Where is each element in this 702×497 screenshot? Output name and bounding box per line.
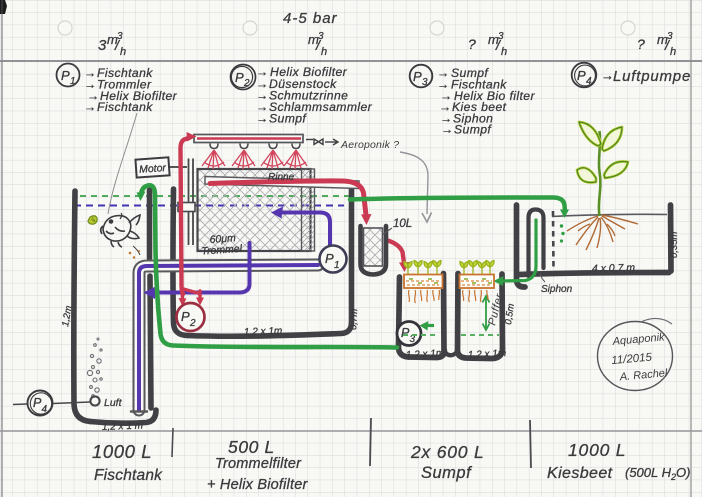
svg-text:4 x 0,7 m: 4 x 0,7 m bbox=[592, 262, 636, 275]
svg-text:1: 1 bbox=[70, 76, 76, 87]
svg-text:+ Helix Biofilter: + Helix Biofilter bbox=[207, 477, 308, 493]
svg-text:P: P bbox=[325, 251, 334, 266]
svg-text:1,2 x 1m: 1,2 x 1m bbox=[244, 326, 283, 338]
svg-text:→: → bbox=[256, 112, 269, 126]
svg-text:Aeroponik ?: Aeroponik ? bbox=[340, 139, 399, 151]
svg-text:h: h bbox=[670, 46, 676, 58]
svg-text:Sumpf: Sumpf bbox=[421, 464, 473, 482]
svg-text:1000 L: 1000 L bbox=[568, 440, 626, 460]
svg-text:4: 4 bbox=[42, 404, 48, 415]
svg-text:2x 600 L: 2x 600 L bbox=[410, 442, 485, 462]
svg-text:P: P bbox=[235, 70, 244, 85]
svg-text:1000 L: 1000 L bbox=[92, 441, 152, 462]
svg-text:h: h bbox=[120, 46, 126, 58]
svg-text:Siphon: Siphon bbox=[541, 284, 573, 295]
svg-text:→: → bbox=[84, 100, 97, 114]
svg-text:3: 3 bbox=[98, 37, 107, 54]
svg-text:0,35m: 0,35m bbox=[669, 232, 680, 258]
svg-text:Luft: Luft bbox=[104, 397, 123, 409]
svg-text:1,2 x 1m: 1,2 x 1m bbox=[468, 348, 507, 361]
svg-text:h: h bbox=[321, 46, 327, 58]
svg-text:Rinne: Rinne bbox=[268, 172, 295, 183]
svg-text:Kiesbeet: Kiesbeet bbox=[547, 465, 613, 482]
svg-text:1,2 x 1 m: 1,2 x 1 m bbox=[102, 421, 143, 433]
svg-text:Fischtank: Fischtank bbox=[97, 100, 153, 114]
svg-text:1: 1 bbox=[334, 260, 340, 271]
svg-text:3: 3 bbox=[422, 77, 428, 88]
svg-text:?: ? bbox=[468, 36, 476, 52]
svg-text:2: 2 bbox=[189, 318, 196, 329]
svg-text:→: → bbox=[441, 123, 454, 137]
svg-text:Motor: Motor bbox=[139, 162, 167, 176]
svg-text:1,2 x 1m: 1,2 x 1m bbox=[406, 348, 445, 361]
svg-text:P: P bbox=[577, 68, 586, 83]
svg-text:?: ? bbox=[637, 36, 645, 52]
svg-text:O): O) bbox=[676, 465, 690, 480]
svg-text:Luftpumpe: Luftpumpe bbox=[613, 68, 691, 85]
svg-text:Sumpf: Sumpf bbox=[269, 112, 307, 126]
svg-text:P: P bbox=[61, 68, 70, 83]
svg-text:500 L: 500 L bbox=[228, 437, 275, 457]
svg-text:Trommelfilter: Trommelfilter bbox=[215, 456, 302, 472]
svg-text:P: P bbox=[413, 69, 422, 84]
svg-text:10L: 10L bbox=[393, 218, 412, 230]
svg-text:4: 4 bbox=[586, 76, 592, 87]
svg-text:Sumpf: Sumpf bbox=[454, 123, 492, 137]
svg-text:(500L H: (500L H bbox=[625, 465, 672, 480]
svg-text:h: h bbox=[501, 46, 507, 58]
svg-text:4-5 bar: 4-5 bar bbox=[283, 10, 338, 27]
svg-text:P: P bbox=[181, 309, 190, 324]
svg-text:0,7m: 0,7m bbox=[348, 308, 360, 330]
svg-text:2: 2 bbox=[243, 78, 250, 89]
svg-text:Fischtank: Fischtank bbox=[94, 467, 163, 484]
